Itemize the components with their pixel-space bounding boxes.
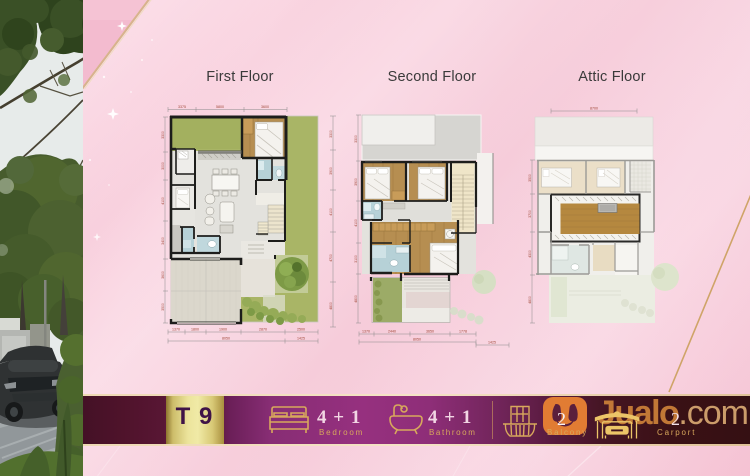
svg-text:3500: 3500 [528,174,532,182]
svg-text:3100: 3100 [354,255,358,263]
svg-text:3300: 3300 [354,135,358,143]
svg-text:8700: 8700 [590,107,598,111]
svg-text:4800: 4800 [329,302,333,310]
svg-text:3900: 3900 [354,178,358,186]
svg-text:2440: 2440 [388,330,396,334]
svg-text:5800: 5800 [216,105,224,109]
svg-text:3000: 3000 [161,162,165,170]
svg-text:8050: 8050 [413,338,421,342]
svg-text:4100: 4100 [161,197,165,205]
svg-text:1425: 1425 [297,337,305,341]
svg-text:4800: 4800 [354,295,358,303]
svg-text:3900: 3900 [329,167,333,175]
svg-text:4100: 4100 [354,219,358,227]
svg-text:4300: 4300 [528,250,532,258]
svg-text:1370: 1370 [172,328,180,332]
svg-text:3600: 3600 [161,271,165,279]
svg-text:3375: 3375 [178,105,186,109]
svg-text:1900: 1900 [219,328,227,332]
svg-text:3500: 3500 [161,303,165,311]
svg-text:4100: 4100 [329,208,333,216]
svg-text:2500: 2500 [297,328,305,332]
svg-text:3650: 3650 [426,330,434,334]
svg-text:1370: 1370 [362,330,370,334]
svg-text:3300: 3300 [329,130,333,138]
svg-text:2870: 2870 [259,328,267,332]
svg-text:3600: 3600 [261,105,269,109]
svg-text:1778: 1778 [459,330,467,334]
svg-text:4800: 4800 [528,296,532,304]
svg-text:4700: 4700 [329,254,333,262]
svg-text:1425: 1425 [488,341,496,345]
svg-text:3700: 3700 [528,210,532,218]
svg-text:3300: 3300 [161,131,165,139]
svg-text:1800: 1800 [191,328,199,332]
svg-text:8050: 8050 [222,337,230,341]
svg-text:3400: 3400 [161,237,165,245]
